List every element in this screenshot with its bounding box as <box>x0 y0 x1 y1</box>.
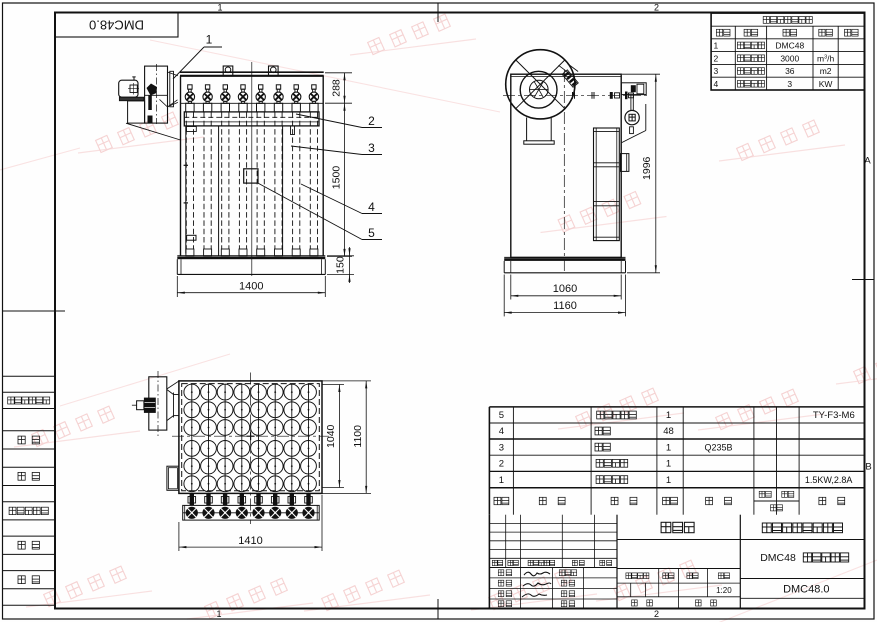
svg-text:4: 4 <box>714 79 719 89</box>
svg-text:Q235B: Q235B <box>704 442 732 452</box>
svg-text:2: 2 <box>714 53 719 63</box>
svg-text:1:20: 1:20 <box>716 586 732 595</box>
svg-text:1: 1 <box>206 33 213 47</box>
svg-text:36: 36 <box>785 66 795 76</box>
svg-text:4: 4 <box>368 200 375 214</box>
svg-text:1: 1 <box>666 410 671 421</box>
svg-text:1.5KW,2.8A: 1.5KW,2.8A <box>805 475 853 485</box>
svg-text:2: 2 <box>654 609 659 619</box>
svg-text:1: 1 <box>216 609 221 619</box>
svg-text:1500: 1500 <box>331 166 343 190</box>
svg-text:B: B <box>865 462 871 473</box>
svg-text:1: 1 <box>666 475 671 486</box>
svg-text:48: 48 <box>663 426 674 437</box>
svg-text:3: 3 <box>714 66 719 76</box>
svg-text:m2: m2 <box>820 66 832 76</box>
svg-text:1: 1 <box>499 475 504 486</box>
svg-text:A: A <box>864 156 871 167</box>
svg-text:KW: KW <box>819 79 833 89</box>
svg-text:1100: 1100 <box>352 425 364 448</box>
svg-text:1996: 1996 <box>641 156 653 180</box>
svg-text:150: 150 <box>335 256 347 274</box>
svg-text:4: 4 <box>499 426 504 437</box>
svg-text:TY-F3-M6: TY-F3-M6 <box>813 410 855 421</box>
svg-text:1: 1 <box>666 442 671 453</box>
svg-text:3: 3 <box>499 442 504 453</box>
svg-text:1060: 1060 <box>553 283 577 295</box>
svg-text:5: 5 <box>368 226 375 240</box>
svg-text:5: 5 <box>499 410 504 421</box>
svg-text:1160: 1160 <box>553 300 577 312</box>
svg-text:1: 1 <box>666 459 671 470</box>
svg-text:2: 2 <box>368 114 375 128</box>
svg-text:2: 2 <box>499 459 504 470</box>
svg-text:2: 2 <box>654 3 659 13</box>
svg-text:1040: 1040 <box>325 424 337 448</box>
svg-text:DMC48.0: DMC48.0 <box>783 583 829 595</box>
svg-text:3: 3 <box>368 141 375 155</box>
svg-text:DMC48.0: DMC48.0 <box>89 17 144 32</box>
svg-text:DMC48: DMC48 <box>775 41 804 51</box>
svg-text:DMC48: DMC48 <box>760 552 796 564</box>
svg-text:3: 3 <box>787 79 792 89</box>
svg-text:288: 288 <box>331 79 343 97</box>
svg-text:1: 1 <box>714 41 719 51</box>
svg-text:1: 1 <box>217 3 222 13</box>
svg-text:1410: 1410 <box>238 535 262 547</box>
svg-text:3000: 3000 <box>780 53 799 63</box>
svg-text:1400: 1400 <box>239 281 263 293</box>
